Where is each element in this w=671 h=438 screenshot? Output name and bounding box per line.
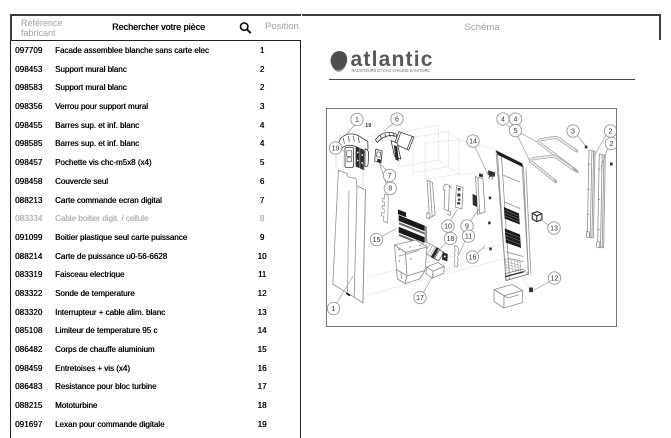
svg-text:14: 14 [469, 138, 477, 145]
svg-text:10: 10 [444, 223, 452, 230]
svg-text:19: 19 [332, 145, 340, 152]
svg-text:13: 13 [550, 225, 558, 232]
svg-text:7: 7 [388, 173, 392, 180]
svg-text:2: 2 [609, 128, 613, 135]
svg-text:19: 19 [365, 123, 371, 129]
svg-text:4: 4 [501, 116, 505, 123]
svg-text:RADIATEURS ET EAU CHAUDE SANIT: RADIATEURS ET EAU CHAUDE SANITAIRE [352, 68, 431, 73]
svg-text:9: 9 [465, 223, 469, 230]
svg-text:1: 1 [355, 117, 359, 124]
svg-text:2: 2 [610, 141, 614, 148]
svg-text:12: 12 [551, 275, 559, 282]
svg-text:17: 17 [416, 295, 424, 302]
svg-text:16: 16 [469, 254, 477, 261]
svg-text:18: 18 [447, 236, 455, 243]
svg-text:1: 1 [332, 306, 336, 313]
svg-text:15: 15 [373, 237, 381, 244]
svg-text:8: 8 [388, 186, 392, 193]
svg-text:6: 6 [395, 116, 399, 123]
svg-text:11: 11 [465, 233, 472, 240]
svg-text:4: 4 [514, 116, 518, 123]
svg-text:5: 5 [514, 128, 518, 135]
svg-text:3: 3 [571, 128, 575, 135]
